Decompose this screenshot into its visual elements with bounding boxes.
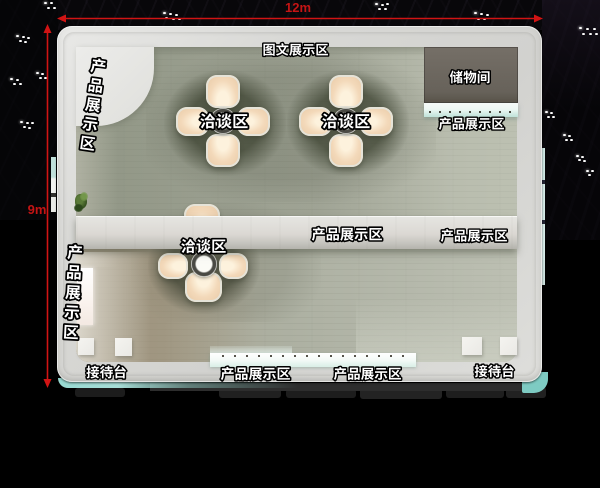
svg-text:9m: 9m [28, 202, 47, 217]
svg-text:12m: 12m [285, 0, 311, 15]
